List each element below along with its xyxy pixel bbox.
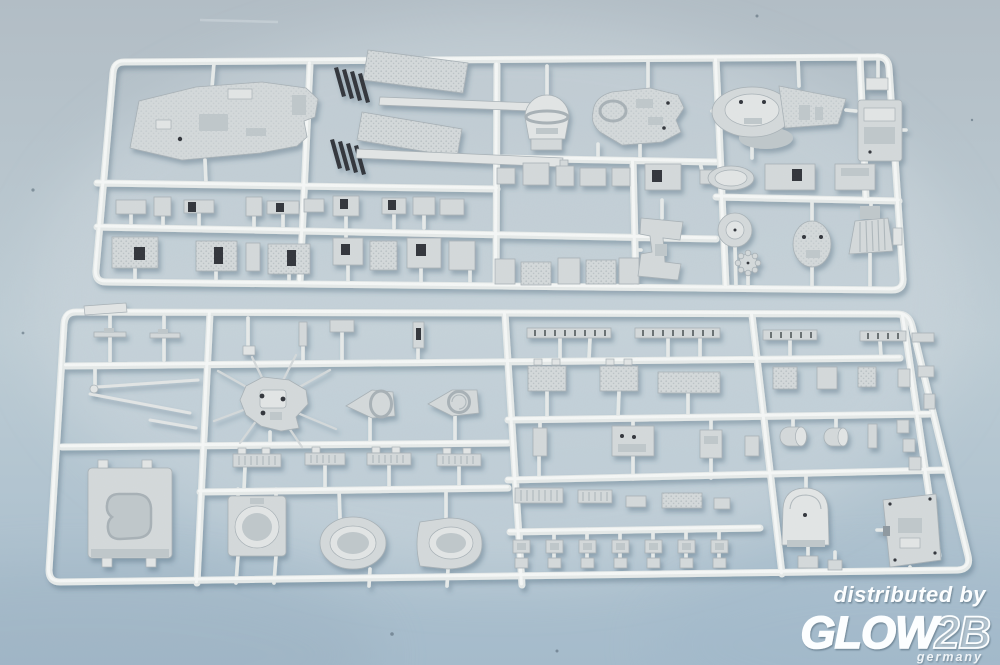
watermark-country: germany bbox=[916, 650, 983, 664]
watermark-distributed-by: distributed by bbox=[834, 582, 988, 607]
photo-model-kit-sprues: Photograph of two light-gray injection-m… bbox=[0, 0, 1000, 665]
photo-grain bbox=[0, 0, 1000, 665]
